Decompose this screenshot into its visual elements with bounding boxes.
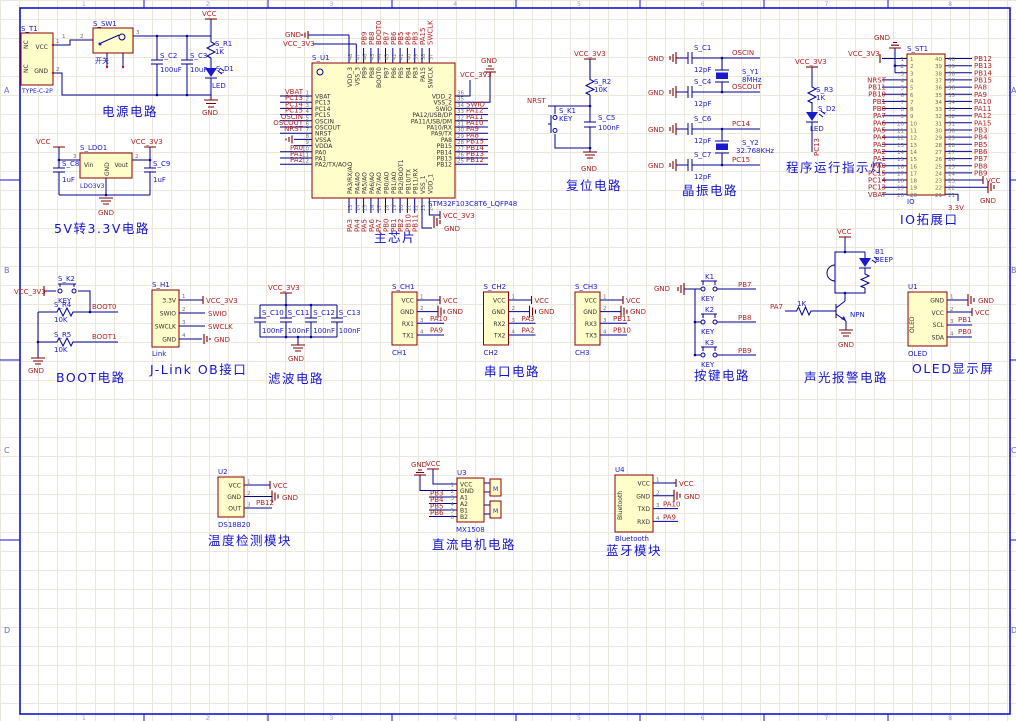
pin-number: 6 — [901, 93, 905, 99]
ch3-ref: S_CH3 — [575, 283, 598, 291]
pin-name: VSS_1 — [420, 175, 427, 194]
key-contact-top[interactable] — [553, 116, 557, 120]
pin-number: 21 — [948, 193, 955, 199]
c6-val: 12pF — [694, 137, 711, 145]
oscin-net: OSCIN — [732, 49, 754, 57]
pin-number: 19 — [910, 186, 917, 192]
col-marker: 4 — [453, 715, 457, 721]
ldo-circuit: VCC VCC_3V3 S_LDO1 3 2 Vin Vout GND LDO3… — [36, 138, 170, 236]
pin-name: BOOT0 — [376, 67, 383, 88]
motor-pin-numbers: 123456 — [451, 483, 455, 522]
key-ref: K1 — [705, 273, 714, 281]
pin-name: PB5 — [398, 67, 405, 79]
c1-ref: S_C1 — [694, 44, 711, 52]
jlink-pin-numbers: 1234 — [182, 294, 186, 339]
key2-contact-left[interactable] — [58, 289, 62, 293]
pin-number: 43 — [385, 54, 391, 60]
resistor-r4[interactable] — [55, 308, 75, 316]
pin-number: 12 — [910, 136, 917, 142]
pin-name: PA2/TX/AO — [315, 162, 347, 169]
cap-value: 100nF — [288, 327, 310, 335]
pin-number: 20 — [897, 193, 904, 199]
col-marker: 5 — [577, 1, 581, 8]
row-marker: C — [1011, 446, 1016, 455]
pin-number: 30 — [935, 129, 942, 135]
section-title-alarm: 声光报警电路 — [804, 370, 888, 385]
pin-number: 3 — [306, 103, 310, 109]
pin-name: PA4/AO — [354, 172, 361, 194]
io-part: IO — [907, 198, 915, 206]
v33-label: VCC_3V3 — [848, 50, 880, 58]
pin-number: 39 — [948, 64, 955, 70]
net-label: PB9 — [974, 169, 987, 177]
col-marker: 4 — [453, 1, 457, 8]
pin-number: 10 — [302, 146, 309, 152]
crystal-y2-body[interactable] — [716, 144, 728, 151]
swclk-net: SWCLK — [208, 323, 233, 331]
section-title-mcu: 主芯片 — [374, 230, 416, 245]
motor2-label: M — [493, 508, 498, 515]
mcu-ref: S_U1 — [312, 54, 330, 62]
pin-number: 1 — [512, 295, 516, 301]
pin-name: VCC — [402, 298, 414, 305]
net-label: SWCLK — [426, 20, 434, 45]
uart-ch1: VCCGNDRX1TX1 1234 S_CH1 CH1 VCC GND PA10… — [392, 283, 463, 357]
gnd-label: GND — [28, 367, 44, 375]
pc15-net: PC15 — [732, 156, 750, 164]
out-net: PB12 — [256, 499, 274, 507]
ch1-part: CH1 — [392, 349, 407, 357]
r1-ref: S_R1 — [215, 40, 232, 48]
ch1-pin-numbers: 1234 — [420, 295, 424, 336]
cap-plates — [688, 52, 692, 171]
pin-number: 37 — [428, 54, 434, 60]
pin-number: 28 — [948, 143, 955, 149]
pin-number: 4 — [950, 331, 954, 337]
v33-label: VCC_3V3 — [14, 288, 46, 296]
pin-number: 6 — [306, 122, 310, 128]
pin-number: 35 — [457, 97, 464, 103]
pin-number: 14 — [910, 150, 917, 156]
pin-name: VCC — [493, 298, 505, 305]
pin-number: 2 — [901, 64, 905, 70]
nrst-net: NRST — [527, 97, 547, 105]
mcu-right-pin-numbers: 363534333231302928272625 — [457, 91, 464, 165]
pin-number: 1 — [603, 295, 607, 301]
resistor-r1[interactable] — [207, 40, 215, 58]
col-marker: 2 — [206, 1, 210, 8]
gnd-top-label: GND — [874, 34, 890, 42]
net-label: PB12 — [466, 156, 484, 164]
key-actuator — [548, 115, 551, 133]
pin-number: 16 — [897, 164, 904, 170]
motor-ref: U3 — [457, 469, 467, 477]
section-title-temp: 温度检测模块 — [208, 533, 292, 548]
section-title-io: IO拓展口 — [900, 212, 959, 227]
key3-contact2 — [713, 353, 717, 357]
pin-number: 9 — [306, 140, 310, 146]
pin-name: VDD_1 — [427, 174, 434, 194]
pin-number: 2 — [910, 64, 914, 70]
pin-name: PB8 — [369, 67, 376, 79]
alarm-resistor[interactable] — [861, 272, 869, 288]
key3-contact[interactable] — [701, 353, 705, 357]
pin-number: 4 — [603, 330, 607, 336]
pin-number: 13 — [897, 143, 904, 149]
pin-number: 3 — [182, 320, 186, 326]
ch3-net-tx: PB10 — [613, 327, 631, 335]
pin-number: 40 — [948, 57, 955, 63]
cap-ref: S_C11 — [288, 309, 310, 317]
pin-number: 4 — [512, 330, 516, 336]
motor-nets: PB3PB4PB5PB6 — [430, 490, 444, 518]
pc14-net: PC14 — [732, 120, 751, 128]
pin-name: B2 — [460, 514, 468, 521]
pin-name: VCC — [229, 483, 241, 490]
key1-actuator — [701, 281, 717, 285]
gnd-label: GND — [581, 165, 597, 173]
pin-number: 5 — [901, 86, 905, 92]
ch1-net-vcc: VCC — [443, 297, 458, 305]
section-title-oled: OLED显示屏 — [912, 361, 994, 376]
pin-name: GND — [583, 309, 597, 316]
t1-part: TYPE-C-2P — [21, 88, 53, 95]
pin-name: PA7/AO — [376, 172, 383, 194]
pin-number: 4 — [420, 330, 424, 336]
motor-part: MX1508 — [456, 526, 485, 534]
pin-number: 14 — [897, 150, 904, 156]
crystal-plates — [715, 70, 729, 153]
pin-number: 2 — [656, 490, 660, 496]
gnd-bot-label: GND — [980, 197, 996, 205]
pin-number: 36 — [948, 86, 955, 92]
pin-number: 41 — [399, 54, 405, 60]
ldo-ref: S_LDO1 — [80, 144, 107, 152]
pin-number: 6 — [910, 93, 914, 99]
gnd-label: GND — [288, 355, 304, 363]
ch3-part: CH3 — [575, 349, 590, 357]
scl-net: PB1 — [958, 316, 971, 324]
k1-ref: S_K1 — [559, 107, 576, 115]
key-ref: K2 — [705, 306, 714, 314]
npn-emitter-arrow — [841, 316, 846, 321]
v33-bot-label: 3.3V — [948, 204, 964, 212]
sw-label: 开关 — [95, 56, 109, 65]
pin-name: PB7 — [384, 67, 391, 79]
ch1-net-gnd: GND — [447, 308, 463, 316]
pin-number: 4 — [656, 516, 660, 522]
pin-number: 37 — [948, 78, 955, 84]
pin-number: 31 — [457, 122, 464, 128]
uart-circuit: VCCGNDRX1TX1 1234 S_CH1 CH1 VCC GND PA10… — [392, 283, 646, 379]
c2-ref: S_C2 — [160, 52, 177, 60]
pin-number: 29 — [948, 136, 955, 142]
pin-number: 23 — [948, 179, 955, 185]
pin-name: SWIO — [160, 311, 177, 318]
pin-number: 5 — [306, 115, 310, 121]
oscout-net: OSCOUT — [732, 83, 762, 91]
key-contact-bottom — [553, 129, 557, 133]
pin-number: 25 — [948, 164, 955, 170]
pin-number: 13 — [348, 205, 354, 211]
pin-number: 2 — [950, 307, 954, 313]
pin-number: 33 — [948, 107, 955, 113]
pin-name: OUT — [228, 506, 241, 513]
vcc-net: VCC — [679, 480, 694, 488]
pin-number: 4 — [306, 109, 310, 115]
row-marker: D — [4, 626, 10, 635]
col-marker: 7 — [825, 1, 829, 8]
mcu-top-nets: PB9PB8BOOT0PB7PB6PB5PB4PB3PA15SWCLK — [361, 20, 435, 45]
pin-number: 44 — [377, 54, 383, 60]
section-title-uart: 串口电路 — [484, 364, 540, 379]
pin-name: GND — [636, 493, 650, 500]
gnd-label-4: GND — [648, 162, 664, 170]
vcc-net: VCC — [975, 309, 990, 317]
rxd-net: PA9 — [663, 513, 676, 521]
col-marker: 1 — [82, 715, 86, 721]
cap-value: 100nF — [339, 327, 361, 335]
cap-ref: S_C13 — [339, 309, 361, 317]
txd-net: PA10 — [663, 501, 680, 509]
col-marker: 3 — [330, 1, 334, 8]
c3-ref: S_C3 — [190, 52, 207, 60]
io-right-outside-numbers: 4039383736353433323130292827262524232221 — [948, 57, 955, 199]
pin-number: 39 — [935, 64, 942, 70]
r4-val: 10K — [54, 316, 68, 324]
mcu-left-nets: VBATPC13PC14PC15OSCINOSCOUTNRSTPA0PA1PA2 — [273, 88, 303, 164]
section-title-power: 电源电路 — [102, 104, 158, 119]
pin-name: SWCLK — [427, 66, 434, 88]
pin-name: PB4 — [405, 67, 412, 79]
pin-number: 16 — [370, 205, 376, 211]
pin-name: VCC — [585, 298, 597, 305]
pin-number: 2 — [306, 97, 310, 103]
pa7-net: PA7 — [770, 303, 783, 311]
key2-contact[interactable] — [701, 320, 705, 324]
pin-name: VDD_3 — [347, 67, 354, 87]
gnd-label: GND — [98, 209, 114, 217]
crystal-circuit: GND GND GND GND S_C1 12pF S_C4 12pF S_C6… — [648, 44, 774, 198]
pin-number: 2 — [451, 489, 455, 495]
r5-val: 10K — [54, 346, 68, 354]
r4-ref: S_R4 — [54, 301, 72, 309]
pin-number: 1 — [420, 295, 424, 301]
power-symbols — [968, 294, 974, 316]
pin-number: 40 — [935, 57, 942, 63]
keys-circuit: K1K2K3 KEYKEYKEY PB7PB8PB9 GND 按键电路 — [654, 273, 756, 383]
pin-number: 33 — [935, 107, 942, 113]
k2-ref: S_K2 — [58, 275, 75, 283]
y1-ref: S_Y1 — [742, 68, 759, 76]
pin-name: PA5/AO — [362, 172, 369, 194]
resistor-r3[interactable] — [808, 85, 816, 103]
pin-number: 3 — [420, 318, 424, 324]
pin-number: 6 — [451, 515, 455, 521]
ldo-pin-vout: Vout — [115, 162, 129, 169]
pin-number: 19 — [897, 186, 904, 192]
base-r-val: 1K — [797, 300, 806, 308]
pin-number: 27 — [935, 150, 942, 156]
pin-number: 36 — [935, 86, 942, 92]
jlink-circuit: 3.3VSWIOSWCLKGND 1234 S_H1 Link VCC_3V3 … — [149, 281, 247, 377]
io-right-nets: PB12PB13PB14PB15PA8PA9PA10PA11PA12PA15PB… — [974, 55, 992, 177]
pin-number: 42 — [392, 54, 398, 60]
c8-val: 1uF — [62, 176, 75, 184]
ch1-net-rx: PA10 — [430, 315, 447, 323]
gnd-label: GND — [654, 285, 670, 293]
r1-val: 1K — [215, 48, 224, 56]
pin-number: 1 — [656, 478, 660, 484]
gnd-net: GND — [684, 493, 700, 501]
pin-number: 9 — [910, 114, 914, 120]
key2-contact-right — [72, 289, 76, 293]
pin-name: TX2 — [493, 333, 506, 340]
key2-actuator — [701, 314, 717, 318]
alarm-led-icon[interactable] — [859, 258, 871, 267]
ldo-num-out: 2 — [135, 154, 139, 160]
pin-number: 2 — [420, 306, 424, 312]
pin-number: 31 — [935, 121, 942, 127]
pin-number: 25 — [457, 159, 464, 165]
r2-ref: S_R2 — [594, 78, 611, 86]
pin-number: 38 — [948, 71, 955, 77]
pin-number: 18 — [385, 205, 391, 211]
ch2-part: CH2 — [484, 349, 499, 357]
pin-number: 22 — [414, 205, 420, 211]
cap-plates — [254, 318, 343, 322]
pin-number: 3 — [512, 318, 516, 324]
pin-number: 37 — [935, 78, 942, 84]
pin-number: 23 — [421, 205, 427, 211]
bt-pin-numbers: 1234 — [656, 478, 660, 522]
pin-name: SWCLK — [155, 324, 177, 331]
cap-value: 100nF — [313, 327, 335, 335]
net-label: PB8 — [738, 314, 751, 322]
col-markers-bottom: 12345678 — [82, 715, 952, 721]
col-marker: 1 — [82, 1, 86, 8]
d2-ref: S_D2 — [818, 105, 836, 113]
pin-name: VCC — [932, 310, 944, 317]
pin-number: 32 — [457, 115, 464, 121]
base-resistor[interactable] — [795, 307, 813, 315]
pin-number: 22 — [935, 186, 942, 192]
pin-number: 12 — [897, 136, 904, 142]
pin-number: 5 — [451, 509, 455, 515]
bt-ref: U4 — [615, 466, 625, 474]
pin-number: 46 — [363, 54, 369, 60]
gnd-label: GND — [202, 109, 218, 117]
reset-circuit: VCC_3V3 S_R2 10K NRST S_K1 KEY S_C5 100n… — [527, 50, 622, 193]
schematic-canvas: ABCD ABCD 12345678 12345678 S_T1 TYPE-C-… — [0, 0, 1016, 721]
crystal-y1-body[interactable] — [716, 73, 728, 80]
oled-side-label: OLED — [909, 316, 916, 333]
pin-number: 10 — [910, 121, 917, 127]
t1-num2: 2 — [56, 67, 60, 73]
net-label: VBAT — [868, 191, 887, 199]
pin-number: 1 — [910, 57, 914, 63]
pin-number: 17 — [377, 205, 383, 211]
pin-number: 7 — [306, 128, 310, 134]
vcc-label: VCC — [837, 228, 852, 236]
pin-number: 11 — [302, 153, 309, 159]
v33-right-label: VCC_3V3 — [460, 71, 492, 79]
pin-number: 2 — [512, 306, 516, 312]
c2-val: 100uF — [160, 66, 182, 74]
resistor-r2[interactable] — [586, 78, 594, 95]
buzzer-b1[interactable] — [827, 265, 835, 281]
pin-name: SCL — [933, 322, 945, 329]
vcc-label: VCC — [202, 10, 217, 18]
mcu-right-nets: SWIOPA12PA11PA10PA9PA8PB15PB14PB13PB12 — [466, 100, 485, 164]
ch3-net-rx: PB11 — [613, 315, 631, 323]
pin-name: TXD — [637, 506, 651, 513]
gnd-label-1: GND — [648, 55, 664, 63]
motor-circuit: VCCGNDA1A2B1B2 123456 PB3PB4PB5PB6 GND V… — [411, 460, 516, 552]
frame-border — [20, 8, 1010, 714]
key-label: KEY — [701, 328, 715, 336]
pin-number: 3 — [247, 503, 251, 509]
pin-number: 17 — [897, 171, 904, 177]
temp-part: DS18B20 — [218, 521, 250, 529]
pin-number: 22 — [948, 186, 955, 192]
key1-contact[interactable] — [701, 287, 705, 291]
pin-number: 34 — [457, 103, 464, 109]
sw-num1: 1 — [62, 34, 66, 40]
motor1-label: M — [493, 486, 498, 493]
t1-nc1: NC — [23, 40, 30, 49]
pin-number: 25 — [935, 164, 942, 170]
pin-number: 24 — [935, 171, 942, 177]
switch-body[interactable] — [93, 28, 133, 53]
section-title-ldo: 5V转3.3V电路 — [54, 221, 150, 236]
resistor-r5[interactable] — [55, 338, 75, 346]
pin-number: 45 — [370, 54, 376, 60]
ch3-net-gnd: GND — [630, 308, 646, 316]
pin-number: 19 — [392, 205, 398, 211]
boot-circuit: VCC_3V3 S_K2 KEY S_R4 10K S_R5 10K BOOT0… — [14, 275, 126, 385]
pin-number: 4 — [910, 78, 914, 84]
gnd-label: GND — [838, 341, 854, 349]
pin-number: 2 — [247, 491, 251, 497]
cap-value: 100nF — [262, 327, 284, 335]
key3-actuator — [701, 347, 717, 351]
pin-name: GND — [492, 309, 506, 316]
net-label: PA2 — [290, 156, 303, 164]
pin-name: PB3 — [413, 67, 420, 79]
led-d2-icon[interactable] — [806, 112, 818, 121]
pin-number: 11 — [897, 129, 904, 135]
c4-val: 12pF — [694, 100, 711, 108]
t1-num1: 1 — [56, 39, 60, 45]
ch1-net-tx: PA9 — [430, 327, 443, 335]
row-marker: B — [1011, 266, 1016, 275]
io-left-outside-numbers: 1234567891011121314151617181920 — [897, 57, 905, 199]
pin-name: PA3/RX/AO — [347, 162, 354, 194]
b1-ref: B1 — [875, 248, 884, 256]
gnd-net: GND — [214, 336, 230, 344]
row-marker: A — [4, 86, 10, 95]
power-circuit: S_T1 TYPE-C-2P VCC GND NC NC 1 2 S_SW1 开… — [21, 10, 234, 119]
pin-number: 1 — [901, 57, 905, 63]
temp-pin-names: VCCGNDOUT — [227, 483, 241, 513]
row-marker: A — [1011, 86, 1016, 95]
pin-number: 14 — [355, 205, 361, 211]
pin-number: 2 — [182, 307, 186, 313]
v33-label: VCC_3V3 — [268, 284, 300, 292]
gnd-net: GND — [978, 297, 994, 305]
c6-ref: S_C6 — [694, 115, 712, 123]
